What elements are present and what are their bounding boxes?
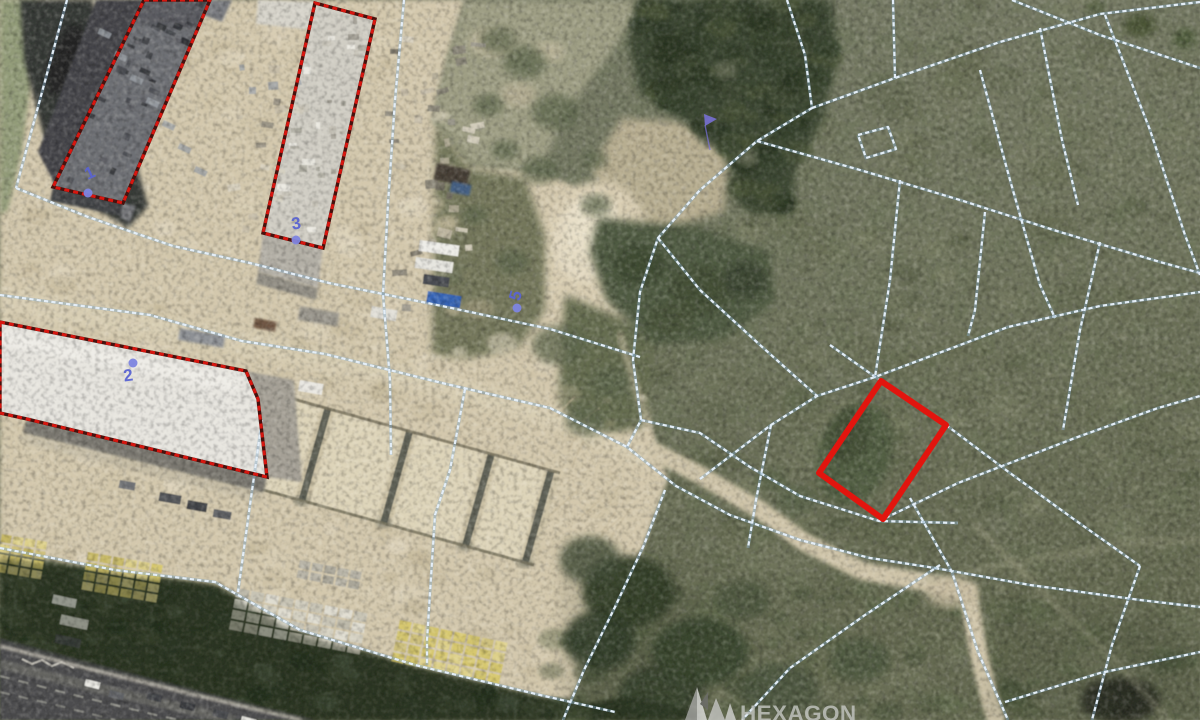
svg-text:HEXAGON: HEXAGON [740,701,857,720]
